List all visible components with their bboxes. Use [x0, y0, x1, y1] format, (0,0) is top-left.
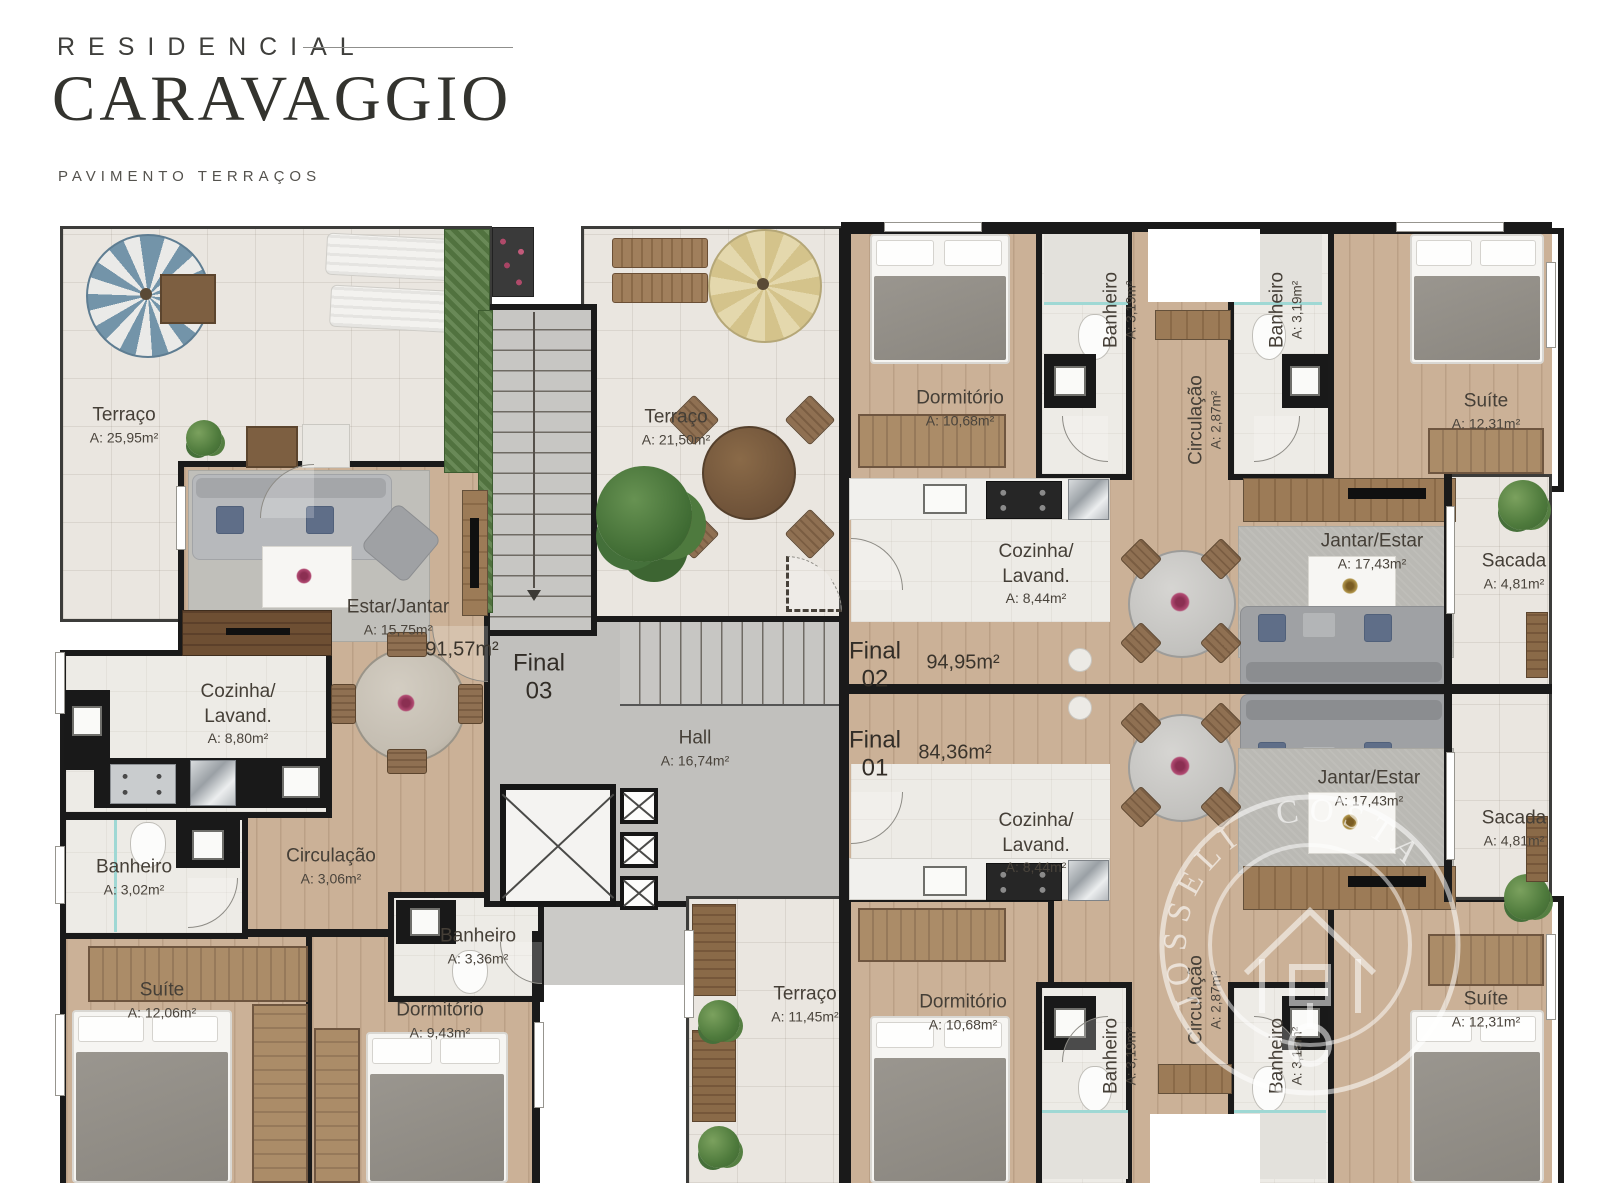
room-label-terraco-f03: TerraçoA: 25,95m²	[90, 404, 158, 447]
blanket	[874, 1058, 1006, 1181]
brand-title: CARAVAGGIO	[52, 62, 512, 137]
potted-plant	[186, 420, 222, 456]
balcony-plant	[1498, 480, 1548, 530]
wardrobe	[858, 908, 1006, 962]
stool	[1068, 696, 1092, 720]
wood-lounger	[612, 238, 708, 268]
sofa-pillow	[1258, 614, 1286, 642]
blanket	[874, 276, 1006, 360]
outdoor-seat	[302, 424, 350, 468]
window	[684, 930, 694, 1018]
window	[55, 652, 65, 714]
sofa-back	[1246, 662, 1442, 682]
unit-area-final-02: 94,95m²	[926, 652, 999, 675]
window	[1396, 222, 1504, 232]
table-flowers	[1170, 756, 1190, 776]
room-label-banheiro1-f01: BanheiroA: 3,19m²	[1100, 1018, 1141, 1094]
header-rule	[303, 47, 513, 48]
sofa-pillow	[1364, 614, 1392, 642]
stair-center-line	[533, 312, 535, 588]
pillow	[372, 1038, 432, 1064]
wood-lounger	[612, 273, 708, 303]
wardrobe	[314, 1028, 360, 1183]
room-label-banheiro2-f02: BanheiroA: 3,19m²	[1266, 272, 1307, 348]
wall	[839, 228, 849, 1183]
room-label-sacada-f01: SacadaA: 4,81m²	[1482, 807, 1546, 850]
window	[534, 1022, 544, 1108]
blanket	[76, 1052, 228, 1181]
terrace-table	[160, 274, 216, 324]
pillow	[944, 240, 1002, 266]
stair-direction-arrow-icon	[527, 590, 541, 601]
dining-chair	[458, 684, 483, 724]
potted-plant	[698, 1126, 740, 1168]
refrigerator	[190, 760, 236, 806]
cooktop	[110, 764, 176, 804]
room-label-sacada-f02: SacadaA: 4,81m²	[1482, 550, 1546, 593]
window	[884, 222, 982, 232]
duct-shaft	[620, 876, 658, 910]
parasol-pole	[140, 288, 152, 300]
table-flowers	[296, 568, 312, 584]
window	[1546, 262, 1556, 348]
table-decor	[1342, 578, 1358, 594]
kitchen-sink	[282, 766, 320, 798]
cooktop	[986, 481, 1062, 519]
unit-label-final-01: Final01	[849, 726, 901, 781]
pillow	[1416, 240, 1472, 266]
stool	[1068, 648, 1092, 672]
pillow	[440, 1038, 500, 1064]
room-label-suite-f02: SuíteA: 12,31m²	[1452, 390, 1520, 433]
wood-side-table	[246, 426, 298, 468]
bathroom-sink	[192, 830, 224, 860]
shower-area	[1042, 1113, 1128, 1179]
room-label-estar-f03: Estar/JantarA: 15,75m²	[347, 596, 449, 639]
duct-shaft	[620, 832, 658, 868]
window	[55, 846, 65, 904]
room-label-cozinha-f01: Cozinha/Lavand.A: 8,44m²	[999, 809, 1074, 877]
balcony-bench	[1526, 612, 1548, 678]
floor-plan-page: RESIDENCIAL CARAVAGGIO PAVIMENTO TERRAÇO…	[0, 0, 1600, 1183]
blank-patch	[1150, 1114, 1260, 1183]
sun-lounger	[329, 285, 463, 334]
sofa-back	[1246, 700, 1442, 720]
blanket	[370, 1074, 504, 1181]
josseli-costa-watermark: JOSSELI COSTA	[1140, 775, 1480, 1115]
room-label-dormitorio-f02: DormitórioA: 10,68m²	[916, 387, 1004, 430]
elevator	[500, 784, 616, 907]
refrigerator	[1068, 479, 1109, 520]
room-label-dormitorio-f01: DormitórioA: 10,68m²	[919, 991, 1007, 1034]
room-label-suite-f03: SuíteA: 12,06m²	[128, 979, 196, 1022]
terrace-planter	[692, 904, 736, 996]
pillow	[1480, 240, 1536, 266]
room-label-cozinha-f02: Cozinha/Lavand.A: 8,44m²	[999, 540, 1074, 608]
room-label-cozinha-f03: Cozinha/Lavand.A: 8,80m²	[201, 680, 276, 748]
bathroom-sink	[410, 908, 440, 936]
duct-shaft	[620, 788, 658, 824]
balcony-door-glass	[1446, 506, 1455, 614]
window	[55, 1014, 65, 1096]
blank-patch	[1148, 229, 1260, 302]
room-label-dormitorio-f03: DormitórioA: 9,43m²	[396, 999, 484, 1042]
hall-cabinet	[1155, 310, 1231, 340]
room-label-circulacao-f03: CirculaçãoA: 3,06m²	[286, 845, 376, 888]
dining-chair	[331, 684, 356, 724]
window	[176, 486, 186, 550]
unit-area-final-01: 84,36m²	[918, 742, 991, 765]
refrigerator	[1068, 860, 1109, 901]
tv-console	[1243, 478, 1456, 522]
room-label-banheiro1-f02: BanheiroA: 3,19m²	[1100, 272, 1141, 348]
unit-label-final-03: Final03	[513, 649, 565, 704]
pillow	[876, 240, 934, 266]
bathroom-sink	[1290, 366, 1320, 396]
terrace-planter	[692, 1030, 736, 1122]
room-label-banheiro1-f03: BanheiroA: 3,02m²	[96, 856, 172, 899]
room-label-jantar-f02: Jantar/EstarA: 17,43m²	[1321, 530, 1423, 573]
room-label-terraco-mid: TerraçoA: 21,50m²	[642, 406, 710, 449]
bathroom-sink	[1054, 366, 1086, 396]
potted-plant	[698, 1000, 740, 1042]
floor-subtitle: PAVIMENTO TERRAÇOS	[58, 168, 321, 185]
stair-upper-run	[620, 622, 839, 706]
ornamental-tree	[596, 466, 692, 562]
room-label-terraco-f01: TerraçoA: 11,45m²	[771, 983, 838, 1026]
wardrobe	[88, 946, 308, 1002]
dining-chair	[387, 749, 427, 774]
sun-lounger	[325, 233, 459, 282]
wardrobe	[1428, 428, 1544, 474]
tv	[470, 518, 479, 588]
unit-area-final-03: 91,57m²	[425, 639, 498, 662]
blanket	[1414, 276, 1540, 360]
cabinet-handle	[226, 628, 290, 635]
table-flowers	[1170, 592, 1190, 612]
room-label-hall: HallA: 16,74m²	[661, 727, 729, 770]
kitchen-sink	[923, 484, 967, 514]
kitchen-sink	[923, 866, 967, 896]
tv	[1348, 488, 1426, 499]
house-icon	[1246, 911, 1374, 1064]
window	[1546, 934, 1556, 1020]
wardrobe	[252, 1004, 308, 1183]
parasol-pole	[757, 278, 769, 290]
table-flowers	[397, 694, 415, 712]
room-label-banheiro2-f03: BanheiroA: 3,36m²	[440, 925, 516, 968]
room-label-circulacao-f02: CirculaçãoA: 2,87m²	[1185, 375, 1226, 465]
kitchen-sink	[72, 706, 102, 736]
flower-box	[492, 227, 534, 297]
stairwell	[484, 304, 597, 636]
sofa-pillow	[216, 506, 244, 534]
sofa-pillow	[1302, 612, 1336, 638]
round-terrace-table	[702, 426, 796, 520]
unit-label-final-02: Final02	[849, 637, 901, 692]
